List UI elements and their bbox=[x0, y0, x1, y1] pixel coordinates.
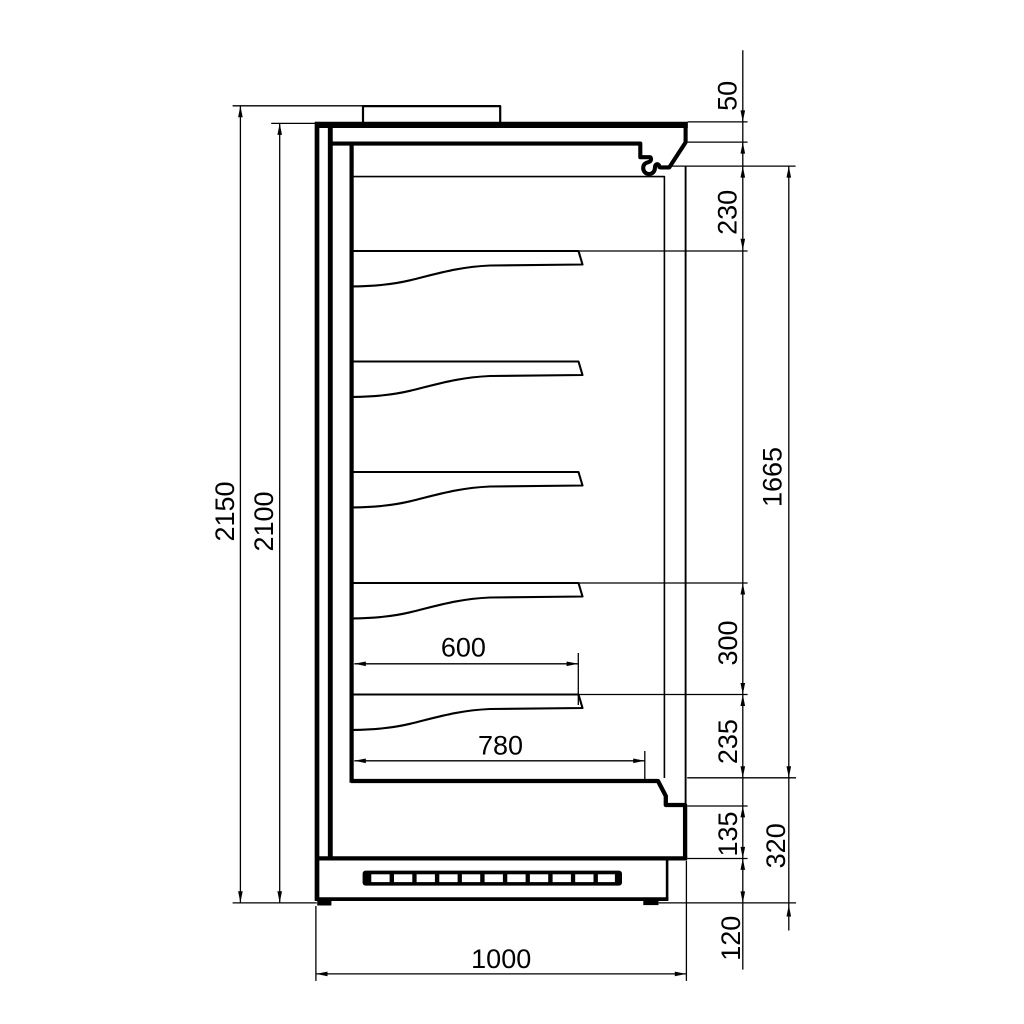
svg-text:600: 600 bbox=[441, 632, 486, 662]
svg-text:2100: 2100 bbox=[249, 491, 279, 551]
svg-text:1665: 1665 bbox=[758, 447, 788, 507]
svg-text:235: 235 bbox=[713, 719, 743, 764]
svg-text:135: 135 bbox=[713, 811, 743, 856]
svg-text:300: 300 bbox=[713, 620, 743, 665]
svg-text:230: 230 bbox=[712, 190, 742, 235]
svg-text:2150: 2150 bbox=[210, 481, 240, 541]
svg-text:780: 780 bbox=[478, 730, 523, 760]
svg-text:50: 50 bbox=[713, 81, 743, 111]
svg-text:120: 120 bbox=[716, 916, 746, 961]
svg-text:1000: 1000 bbox=[471, 944, 531, 974]
svg-text:320: 320 bbox=[761, 823, 791, 868]
